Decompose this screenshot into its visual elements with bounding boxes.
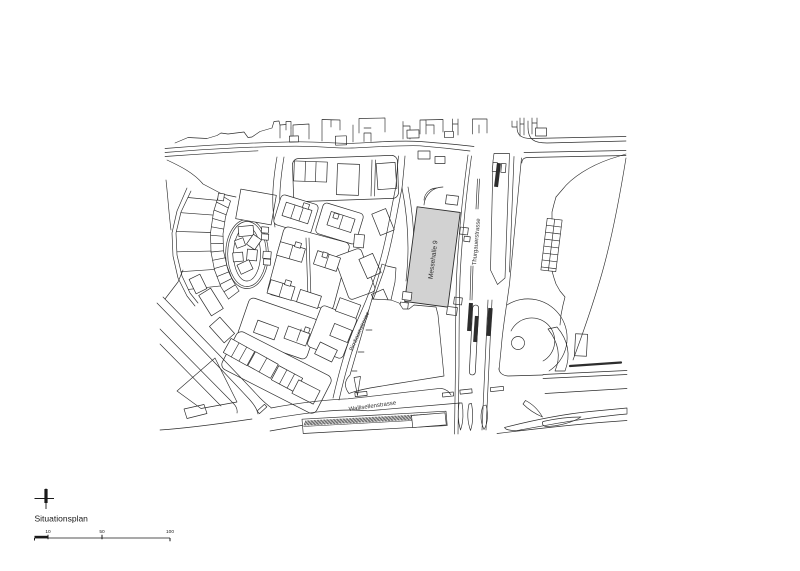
svg-text:10: 10: [45, 529, 51, 535]
svg-text:Situationsplan: Situationsplan: [35, 514, 89, 524]
svg-text:50: 50: [99, 529, 105, 535]
svg-text:100: 100: [166, 529, 174, 535]
